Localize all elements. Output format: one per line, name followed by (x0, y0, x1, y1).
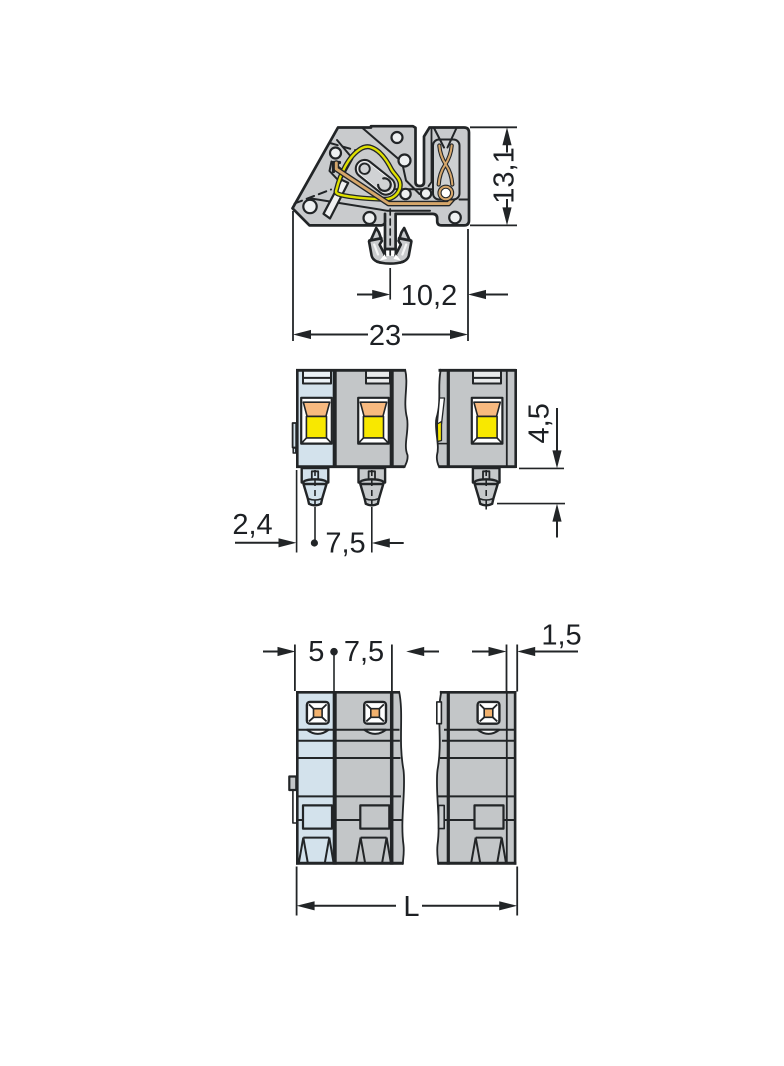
svg-text:4,5: 4,5 (524, 403, 556, 443)
svg-text:L: L (403, 891, 419, 923)
svg-text:1,5: 1,5 (541, 619, 581, 651)
svg-text:23: 23 (369, 320, 401, 352)
svg-text:2,4: 2,4 (232, 509, 272, 541)
svg-text:10,2: 10,2 (401, 280, 457, 312)
svg-text:5: 5 (308, 636, 324, 668)
svg-text:7,5: 7,5 (344, 636, 384, 668)
svg-text:7,5: 7,5 (325, 528, 365, 560)
svg-text:13,1: 13,1 (489, 147, 521, 203)
